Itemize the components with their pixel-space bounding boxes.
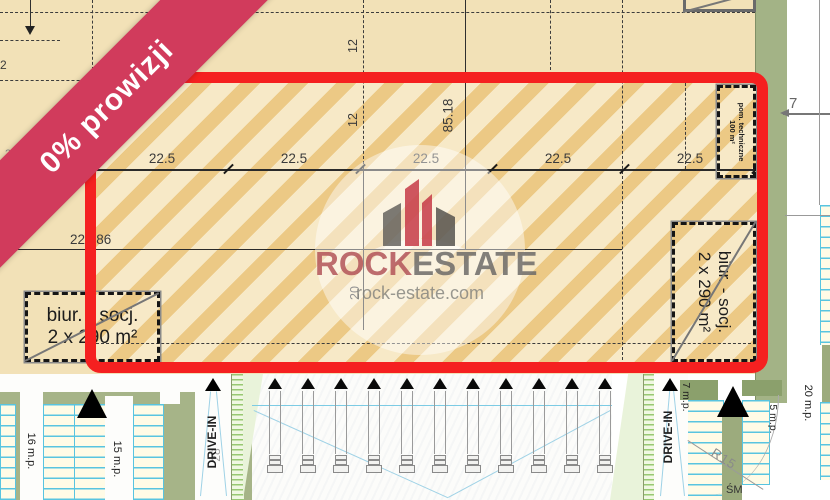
dock-lane — [498, 378, 514, 474]
dock-leveler-icon — [267, 455, 283, 473]
dock-arrow-icon — [598, 378, 612, 389]
arrow-left-icon — [780, 109, 789, 117]
dock-leveler-icon — [300, 455, 316, 473]
parking-stalls — [0, 404, 16, 500]
dock-arrow-icon — [400, 378, 414, 389]
lane-line — [500, 391, 501, 454]
lane-line — [467, 391, 468, 454]
dock-lane — [333, 378, 349, 474]
parking-20-label: 20 m.p. — [802, 379, 814, 427]
lane-line — [379, 391, 380, 454]
dock-leveler-icon — [465, 455, 481, 473]
parking-5-label: 5 m.p. — [767, 399, 779, 439]
lane-line — [335, 391, 336, 454]
entrance-arrow-icon — [717, 386, 749, 417]
lane-line — [434, 391, 435, 454]
drive-in-left-label: DRIVE-IN — [205, 411, 219, 473]
dock-arrow-icon — [565, 378, 579, 389]
drive-in-right-label: DRIVE-IN — [661, 406, 675, 468]
dim-bay-a: 12 — [346, 36, 360, 56]
dock-arrow-icon — [499, 378, 513, 389]
watermark-website: rock-estate.com — [315, 283, 525, 304]
lane-line — [599, 391, 600, 454]
dock-leveler-icon — [399, 455, 415, 473]
drive-in-arrow-icon — [205, 378, 221, 391]
parking-stalls — [43, 404, 107, 500]
lane-line — [577, 391, 578, 454]
boundary-line — [819, 0, 820, 205]
parking-16-label: 16 m.p. — [25, 429, 37, 473]
floor-plan-image: 22.5 22.5 22.5 22.5 22.5 85.18 12 12 20 … — [0, 0, 830, 500]
lane-line — [269, 391, 270, 454]
parking-stalls — [820, 402, 830, 480]
grid-line — [785, 215, 830, 216]
dock-lane — [300, 378, 316, 474]
dock-arrow-icon — [433, 378, 447, 389]
dock-arrow-icon — [367, 378, 381, 389]
watermark-brand: ROCKESTATE — [315, 245, 525, 283]
lane-line — [368, 391, 369, 454]
dock-arrow-icon — [301, 378, 315, 389]
grid-line — [0, 40, 60, 41]
dock-arrow-icon — [334, 378, 348, 389]
parking-7-label: 7 m.p. — [680, 377, 692, 417]
dock-lane — [465, 378, 481, 474]
landscape-hatch-strip — [231, 374, 244, 500]
lane-line — [445, 391, 446, 454]
lane-line — [280, 391, 281, 454]
dock-leveler-icon — [498, 455, 514, 473]
lane-line — [412, 391, 413, 454]
watermark-brand-estate: ESTATE — [412, 245, 537, 282]
dock-leveler-icon — [564, 455, 580, 473]
entrance-arrow-icon — [77, 389, 107, 418]
dock-arrow-icon — [466, 378, 480, 389]
lane-line — [478, 391, 479, 454]
dock-arrow-icon — [532, 378, 546, 389]
parking-15-label: 15 m.p. — [111, 437, 123, 481]
lane-line — [313, 391, 314, 454]
dock-lane — [366, 378, 382, 474]
north-line — [30, 0, 31, 28]
dock-leveler-icon — [366, 455, 382, 473]
dock-lane — [267, 378, 283, 474]
lane-line — [511, 391, 512, 454]
grid-line — [0, 12, 755, 13]
grid-line — [92, 0, 93, 70]
dock-leveler-icon — [597, 455, 613, 473]
dock-lane — [432, 378, 448, 474]
lane-line — [302, 391, 303, 454]
lane-line — [346, 391, 347, 454]
dock-leveler-icon — [531, 455, 547, 473]
dock-lane — [597, 378, 613, 474]
dock-lane — [564, 378, 580, 474]
watermark: ROCKESTATE rock-estate.com — [315, 145, 525, 355]
lane-line — [610, 391, 611, 454]
dock-lane — [399, 378, 415, 474]
landscape-wedge — [610, 374, 643, 500]
lane-line — [533, 391, 534, 454]
dock-leveler-icon — [333, 455, 349, 473]
parking-stalls — [133, 404, 164, 500]
parking-stalls — [820, 205, 830, 345]
rockestate-logo-icon — [375, 171, 465, 249]
grid-line — [550, 0, 551, 70]
driveway-stub — [160, 374, 180, 404]
dim-edge-left: 2 — [0, 58, 7, 72]
lane-line — [566, 391, 567, 454]
dim-offset-right: 7 — [789, 95, 797, 112]
lane-line — [544, 391, 545, 454]
arrow-down-icon — [25, 26, 35, 35]
drive-in-arrow-icon — [662, 378, 678, 391]
lane-line — [401, 391, 402, 454]
planter-block — [822, 345, 830, 402]
dock-arrow-icon — [268, 378, 282, 389]
dimension-line-right — [783, 113, 830, 115]
dock-leveler-icon — [432, 455, 448, 473]
trash-label: ŚM — [726, 484, 743, 496]
dock-lane — [531, 378, 547, 474]
stall-divider — [74, 404, 76, 500]
watermark-brand-rock: ROCK — [315, 245, 412, 282]
